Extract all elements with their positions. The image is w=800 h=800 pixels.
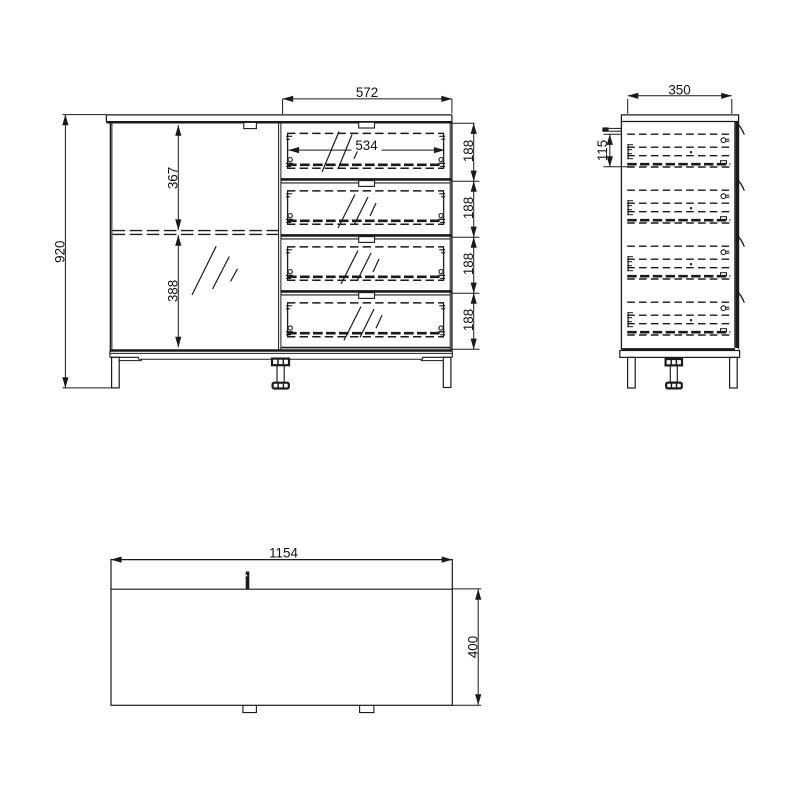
svg-text:367: 367 <box>165 167 180 189</box>
svg-text:388: 388 <box>165 280 180 302</box>
svg-text:188: 188 <box>461 253 476 275</box>
svg-text:1154: 1154 <box>269 545 298 560</box>
svg-text:572: 572 <box>356 85 378 100</box>
svg-text:350: 350 <box>668 83 690 98</box>
svg-text:188: 188 <box>461 197 476 219</box>
svg-text:115: 115 <box>595 140 610 161</box>
svg-text:400: 400 <box>465 636 480 658</box>
svg-text:534: 534 <box>355 138 378 153</box>
svg-text:188: 188 <box>461 309 476 331</box>
svg-text:188: 188 <box>461 140 476 162</box>
svg-text:920: 920 <box>53 241 68 263</box>
